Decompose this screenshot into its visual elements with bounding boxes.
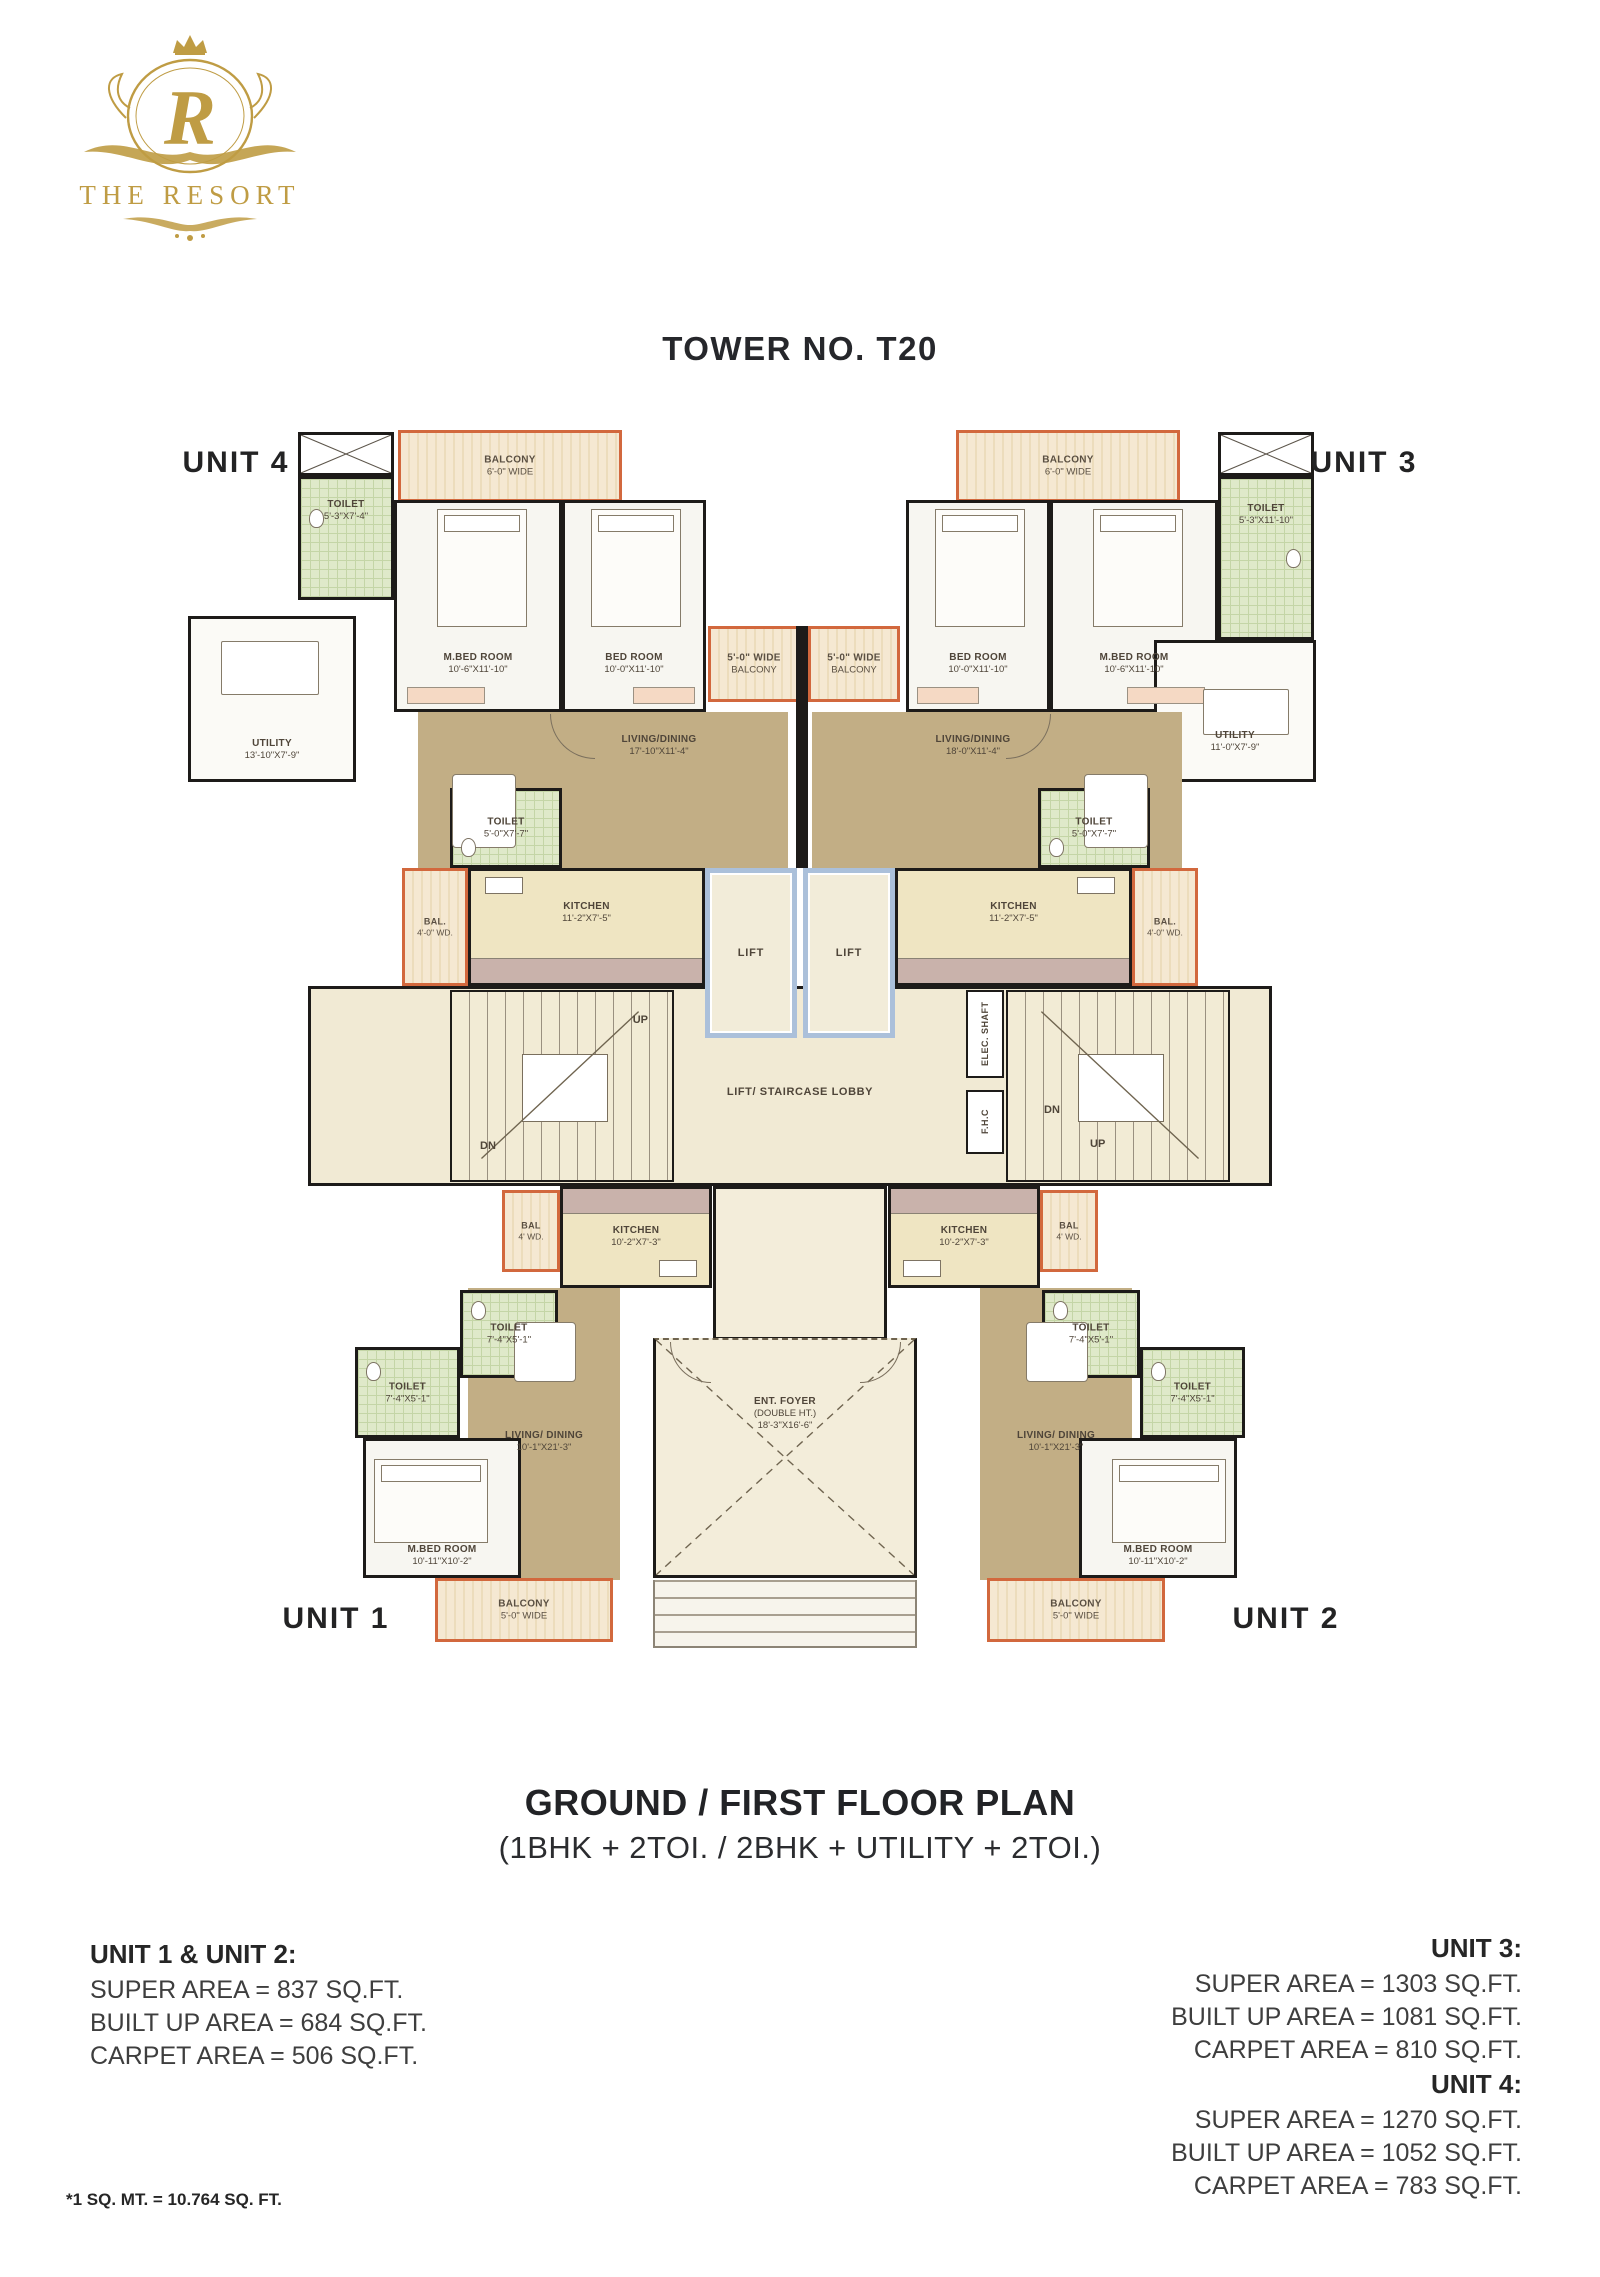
room-dims: 4'-0" WD. [405, 928, 465, 938]
room-dims: 5'-0" WIDE [811, 653, 897, 664]
master-bedroom-unit4: M.BED ROOM 10'-6"X11'-10" [394, 500, 562, 712]
room-dims: 5'-0" WIDE [990, 1611, 1162, 1622]
toilet-unit2-b: TOILET 7'-4"X5'-1" [1140, 1347, 1245, 1438]
room-dims: 10'-11"X10'-2" [366, 1556, 518, 1567]
room-name: KITCHEN [891, 1225, 1037, 1236]
dining-table-icon [1026, 1322, 1088, 1382]
sink-icon [659, 1260, 697, 1277]
stair-down-label: DN [480, 1140, 496, 1152]
master-bedroom-unit1: M.BED ROOM 10'-11"X10'-2" [363, 1438, 521, 1578]
room-dims: 10'-2"X7'-3" [891, 1237, 1037, 1248]
area-line: CARPET AREA = 783 SQ.FT. [1171, 2170, 1522, 2203]
balcony-mid-left: BAL. 4'-0" WD. [402, 868, 468, 986]
room-dims: 6'-0" WIDE [401, 467, 619, 478]
room-dims: 7'-4"X5'-1" [1143, 1393, 1242, 1404]
dining-table-icon [1084, 774, 1148, 848]
lift-2: LIFT [803, 868, 895, 1038]
balcony-unit1: BALCONY 5'-0" WIDE [435, 1578, 613, 1642]
room-name: LIFT/ STAIRCASE LOBBY [727, 1086, 873, 1098]
area-line: CARPET AREA = 506 SQ.FT. [90, 2040, 427, 2073]
shaft-label: F.H.C [968, 1092, 1002, 1152]
wardrobe-icon [407, 687, 485, 704]
plan-heading: GROUND / FIRST FLOOR PLAN [0, 1782, 1600, 1824]
area-block-unit4: UNIT 4: SUPER AREA = 1270 SQ.FT. BUILT U… [1171, 2068, 1522, 2203]
toilet-fixture-icon [461, 838, 476, 857]
room-label: LIVING/DINING 17'-10"X11'-4" [594, 734, 724, 757]
crown-icon [170, 34, 210, 56]
room-name: BALCONY [401, 455, 619, 466]
kitchen-unit3: KITCHEN 11'-2"X7'-5" [895, 868, 1132, 986]
page-title: TOWER NO. T20 [0, 330, 1600, 368]
room-name: BED ROOM [909, 652, 1047, 663]
area-line: BUILT UP AREA = 1081 SQ.FT. [1171, 2001, 1522, 2034]
toilet-unit1-b: TOILET 7'-4"X5'-1" [355, 1347, 460, 1438]
room-name: KITCHEN [898, 901, 1129, 912]
balcony-unit1-side: BAL 4' WD. [502, 1190, 560, 1272]
room-name: BALCONY [990, 1599, 1162, 1610]
balcony-top-right: BALCONY 6'-0" WIDE [956, 430, 1180, 502]
room-label: KITCHEN 11'-2"X7'-5" [471, 901, 702, 924]
room-name: BALCONY [959, 455, 1177, 466]
room-name: BALCONY [438, 1599, 610, 1610]
room-dims: 10'-6"X11'-10" [397, 664, 559, 675]
room-name: BAL [505, 1221, 557, 1231]
room-label: BAL 4' WD. [1043, 1221, 1095, 1242]
room-dims: 4'-0" WD. [1135, 928, 1195, 938]
area-title: UNIT 3: [1171, 1932, 1522, 1965]
room-name: KITCHEN [471, 901, 702, 912]
area-line: BUILT UP AREA = 1052 SQ.FT. [1171, 2137, 1522, 2170]
room-dims: 10'-0"X11'-10" [909, 664, 1047, 675]
room-label: BALCONY 6'-0" WIDE [401, 455, 619, 478]
room-name: BED ROOM [565, 652, 703, 663]
bedroom-unit4: BED ROOM 10'-0"X11'-10" [562, 500, 706, 712]
area-title: UNIT 4: [1171, 2068, 1522, 2101]
unit2-label: UNIT 2 [1206, 1602, 1366, 1636]
lobby-label: LIFT/ STAIRCASE LOBBY [630, 1082, 970, 1100]
area-block-unit1-2: UNIT 1 & UNIT 2: SUPER AREA = 837 SQ.FT.… [90, 1938, 427, 2073]
bedroom-unit3: BED ROOM 10'-0"X11'-10" [906, 500, 1050, 712]
sink-icon [903, 1260, 941, 1277]
wardrobe-icon [917, 687, 979, 704]
room-dims: 10'-2"X7'-3" [563, 1237, 709, 1248]
room-name: M.BED ROOM [366, 1544, 518, 1555]
balcony-unit2-side: BAL 4' WD. [1040, 1190, 1098, 1272]
bed-icon [591, 509, 681, 627]
room-dims: 11'-2"X7'-5" [898, 913, 1129, 924]
stair-direction-line [1008, 992, 1228, 1180]
balcony-top-left: BALCONY 6'-0" WIDE [398, 430, 622, 502]
kitchen-counter [891, 1189, 1037, 1214]
entry-corridor [713, 1186, 887, 1340]
stair-down-label: DN [1044, 1104, 1060, 1116]
toilet-unit3-top: TOILET 5'-3"X11'-10" [1218, 476, 1314, 640]
room-dims: 10'-11"X10'-2" [1082, 1556, 1234, 1567]
room-label: BALCONY 6'-0" WIDE [959, 455, 1177, 478]
conversion-footnote: *1 SQ. MT. = 10.764 SQ. FT. [66, 2190, 282, 2210]
room-dims: 11'-2"X7'-5" [471, 913, 702, 924]
unit1-label: UNIT 1 [256, 1602, 416, 1636]
area-line: SUPER AREA = 1303 SQ.FT. [1171, 1968, 1522, 2001]
unit3-label: UNIT 3 [1284, 446, 1444, 480]
room-label: BED ROOM 10'-0"X11'-10" [909, 652, 1047, 675]
room-name: LIFT [710, 947, 792, 959]
kitchen-unit2: KITCHEN 10'-2"X7'-3" [888, 1186, 1040, 1288]
room-name: BALCONY [711, 665, 797, 676]
room-name: UTILITY [191, 738, 353, 749]
svg-text:R: R [163, 74, 216, 161]
balcony-5ft-right: 5'-0" WIDE BALCONY [808, 626, 900, 702]
wardrobe-icon [633, 687, 695, 704]
room-label: TOILET 7'-4"X5'-1" [1143, 1381, 1242, 1404]
floor-plan-page: R THE RESORT TOWER NO. T20 UNIT 4 UNIT 3… [0, 0, 1600, 2277]
room-label: KITCHEN 10'-2"X7'-3" [891, 1225, 1037, 1248]
room-dims: 10'-0"X11'-10" [565, 664, 703, 675]
stair-up-label: UP [1090, 1138, 1105, 1150]
room-name: M.BED ROOM [397, 652, 559, 663]
room-label: BAL. 4'-0" WD. [1135, 917, 1195, 938]
sink-icon [485, 877, 523, 894]
dining-table-icon [514, 1322, 576, 1382]
kitchen-counter [898, 958, 1129, 983]
room-name: TOILET [358, 1381, 457, 1392]
room-dims: 5'-3"X11'-10" [1221, 515, 1311, 526]
stair-up-label: UP [633, 1014, 648, 1026]
utility-table-icon [1203, 689, 1289, 735]
area-title: UNIT 1 & UNIT 2: [90, 1938, 427, 1971]
room-dims: 4' WD. [505, 1232, 557, 1242]
party-wall [796, 626, 808, 868]
room-label: BAL. 4'-0" WD. [405, 917, 465, 938]
room-label: 5'-0" WIDE BALCONY [811, 653, 897, 676]
fire-hose-cabinet: F.H.C [966, 1090, 1004, 1154]
brand-name: THE RESORT [52, 180, 328, 211]
entrance-steps [653, 1580, 917, 1648]
room-dims: 6'-0" WIDE [959, 467, 1177, 478]
flourish-icon [115, 211, 265, 245]
bed-icon [935, 509, 1025, 627]
toilet-fixture-icon [1053, 1301, 1068, 1320]
floor-plan: UNIT 4 UNIT 3 UNIT 1 UNIT 2 BALCONY 6'-0… [150, 430, 1450, 1700]
room-name: TOILET [1143, 1381, 1242, 1392]
toilet-fixture-icon [1049, 838, 1064, 857]
kitchen-unit4: KITCHEN 11'-2"X7'-5" [468, 868, 705, 986]
room-dims: 17'-10"X11'-4" [594, 746, 724, 757]
room-name: BAL [1043, 1221, 1095, 1231]
room-label: BALCONY 5'-0" WIDE [438, 1599, 610, 1622]
toilet-unit4-top: TOILET 5'-3"X7'-4" [298, 476, 394, 600]
room-name: KITCHEN [563, 1225, 709, 1236]
staircase-right: DN UP [1006, 990, 1230, 1182]
toilet-fixture-icon [471, 1301, 486, 1320]
lift-1: LIFT [705, 868, 797, 1038]
room-label: M.BED ROOM 10'-11"X10'-2" [1082, 1544, 1234, 1567]
room-label: TOILET 5'-3"X11'-10" [1221, 503, 1311, 526]
kitchen-unit1: KITCHEN 10'-2"X7'-3" [560, 1186, 712, 1288]
room-dims: 5'-0" WIDE [438, 1611, 610, 1622]
utility-table-icon [221, 641, 319, 695]
room-name: BAL. [405, 917, 465, 927]
room-name: M.BED ROOM [1082, 1544, 1234, 1555]
room-label: M.BED ROOM 10'-6"X11'-10" [397, 652, 559, 675]
balcony-unit2: BALCONY 5'-0" WIDE [987, 1578, 1165, 1642]
room-dims: 4' WD. [1043, 1232, 1095, 1242]
room-dims: 7'-4"X5'-1" [358, 1393, 457, 1404]
area-block-unit3: UNIT 3: SUPER AREA = 1303 SQ.FT. BUILT U… [1171, 1932, 1522, 2067]
room-name: LIFT [808, 947, 890, 959]
plan-subheading: (1BHK + 2TOI. / 2BHK + UTILITY + 2TOI.) [0, 1830, 1600, 1866]
room-label: LIFT [808, 947, 890, 959]
room-label: LIFT [710, 947, 792, 959]
electrical-shaft: ELEC. SHAFT [966, 990, 1004, 1078]
room-label: TOILET 7'-4"X5'-1" [358, 1381, 457, 1404]
room-label: KITCHEN 11'-2"X7'-5" [898, 901, 1129, 924]
toilet-fixture-icon [366, 1362, 381, 1381]
room-dims: 13'-10"X7'-9" [191, 750, 353, 761]
sink-icon [1077, 877, 1115, 894]
master-bedroom-unit2: M.BED ROOM 10'-11"X10'-2" [1079, 1438, 1237, 1578]
toilet-fixture-icon [1151, 1362, 1166, 1381]
room-name: BALCONY [811, 665, 897, 676]
room-name: BAL. [1135, 917, 1195, 927]
room-label: M.BED ROOM 10'-11"X10'-2" [366, 1544, 518, 1567]
wardrobe-icon [1127, 687, 1205, 704]
bed-icon [437, 509, 527, 627]
area-line: CARPET AREA = 810 SQ.FT. [1171, 2034, 1522, 2067]
room-label: KITCHEN 10'-2"X7'-3" [563, 1225, 709, 1248]
dining-table-icon [452, 774, 516, 848]
toilet-fixture-icon [1286, 549, 1301, 568]
room-label: BED ROOM 10'-0"X11'-10" [565, 652, 703, 675]
room-label: UTILITY 13'-10"X7'-9" [191, 738, 353, 761]
room-label: BAL 4' WD. [505, 1221, 557, 1242]
monogram-emblem-icon: R [74, 56, 306, 178]
kitchen-counter [563, 1189, 709, 1214]
room-name: TOILET [1221, 503, 1311, 514]
shaft-label: ELEC. SHAFT [968, 992, 1002, 1076]
unit4-label: UNIT 4 [156, 446, 316, 480]
utility-unit4: UTILITY 13'-10"X7'-9" [188, 616, 356, 782]
area-line: BUILT UP AREA = 684 SQ.FT. [90, 2007, 427, 2040]
room-label: BALCONY 5'-0" WIDE [990, 1599, 1162, 1622]
room-label: 5'-0" WIDE BALCONY [711, 653, 797, 676]
balcony-mid-right: BAL. 4'-0" WD. [1132, 868, 1198, 986]
brand-logo: R THE RESORT [52, 34, 328, 245]
room-name: LIVING/DINING [594, 734, 724, 745]
room-dims: 5'-0" WIDE [711, 653, 797, 664]
bed-icon [1093, 509, 1183, 627]
bed-icon [1112, 1459, 1226, 1543]
toilet-fixture-icon [309, 509, 324, 528]
bed-icon [374, 1459, 488, 1543]
kitchen-counter [471, 958, 702, 983]
area-line: SUPER AREA = 1270 SQ.FT. [1171, 2104, 1522, 2137]
area-line: SUPER AREA = 837 SQ.FT. [90, 1974, 427, 2007]
balcony-5ft-left: 5'-0" WIDE BALCONY [708, 626, 800, 702]
